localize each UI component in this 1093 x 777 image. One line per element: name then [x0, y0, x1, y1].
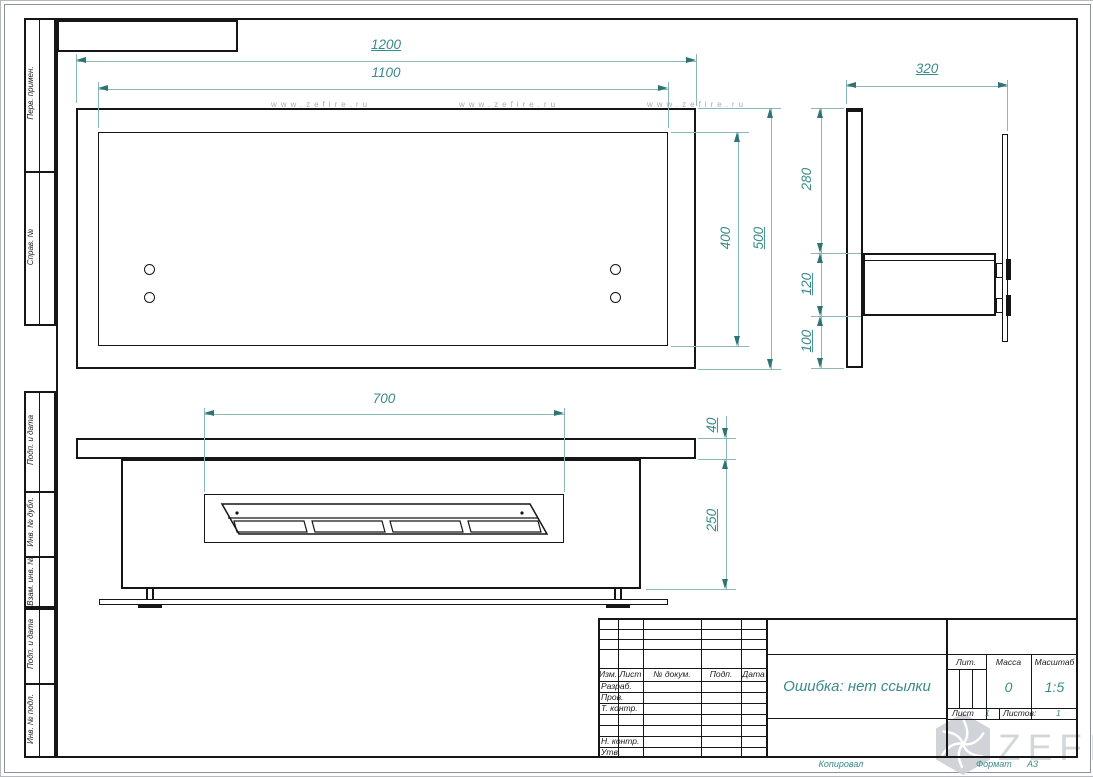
rev-header-izm: Изм.: [598, 670, 618, 679]
mount-hole: [144, 292, 155, 303]
mount-hole: [610, 292, 621, 303]
mount-hole: [144, 264, 155, 275]
row-utv: Утв.: [601, 748, 620, 757]
doc-title: Ошибка: нет ссылки: [771, 679, 943, 696]
mass-label: Масса: [986, 658, 1031, 667]
sheet-label: Лист: [952, 709, 974, 718]
scale-label: Масштаб: [1031, 658, 1078, 667]
rev-header-podp: Подп.: [701, 670, 741, 679]
rotated-designation-box: [57, 20, 238, 52]
sheets-label: Листов:: [1003, 709, 1036, 718]
foot-pad: [606, 604, 630, 608]
rev-header-list: Лист: [618, 670, 643, 679]
margin-label-inv-podl: Инв. № подл.: [27, 683, 35, 755]
margin-label-sprav-no: Справ. №: [27, 187, 35, 307]
foot-pad: [138, 604, 162, 608]
sheets-value: 1: [1056, 709, 1061, 718]
dim-front-outer-width: 1200: [351, 38, 421, 52]
site-watermark: www.zefire.ru: [459, 100, 559, 109]
scale-value: 1:5: [1031, 680, 1078, 695]
format-value: А3: [1027, 760, 1038, 770]
margin-label-podp-data-1: Подп. и дата: [27, 395, 35, 485]
row-t-kontr: Т. контр.: [601, 704, 638, 713]
dim-plan-shelf-thickness: 40: [705, 406, 719, 444]
format-label: Формат: [976, 760, 1012, 770]
margin-label-vzam-inv: Взам. инв. №: [27, 551, 35, 611]
dim-front-outer-height: 500: [752, 213, 766, 263]
drawing-sheet: Перв. примен. Справ. № Подп. и дата Инв.…: [0, 0, 1093, 777]
lit-label: Лит.: [946, 658, 986, 667]
dim-side-body-height: 120: [800, 258, 814, 310]
rev-header-data: Дата: [741, 670, 766, 679]
margin-label-perv-primen: Перв. примен.: [27, 33, 35, 153]
sheet-value: 1: [985, 709, 990, 718]
dim-front-inner-height: 400: [719, 213, 733, 263]
mass-value: 0: [986, 680, 1031, 695]
dim-plan-body-height: 250: [705, 494, 719, 546]
margin-label-inv-dubl: Инв. № дубл.: [27, 492, 35, 552]
mount-hole: [610, 264, 621, 275]
site-watermark: www.zefire.ru: [271, 100, 371, 109]
dim-front-inner-width: 1100: [351, 66, 421, 80]
dim-side-upper-height: 280: [800, 153, 814, 205]
copied-by-label: Копировал: [806, 760, 876, 770]
site-watermark: www.zefire.ru: [647, 100, 747, 109]
dim-plan-insert-width: 700: [349, 392, 419, 406]
row-prov: Пров.: [601, 693, 623, 702]
margin-label-podp-data-2: Подп. и дата: [27, 608, 35, 680]
row-n-kontr: Н. контр.: [601, 737, 639, 746]
burner-insert: [204, 494, 564, 544]
dim-side-lower-height: 100: [800, 315, 814, 367]
rev-header-dokum: № докум.: [643, 670, 701, 679]
row-razrab: Разраб.: [601, 682, 632, 691]
dim-side-depth: 320: [894, 62, 960, 76]
